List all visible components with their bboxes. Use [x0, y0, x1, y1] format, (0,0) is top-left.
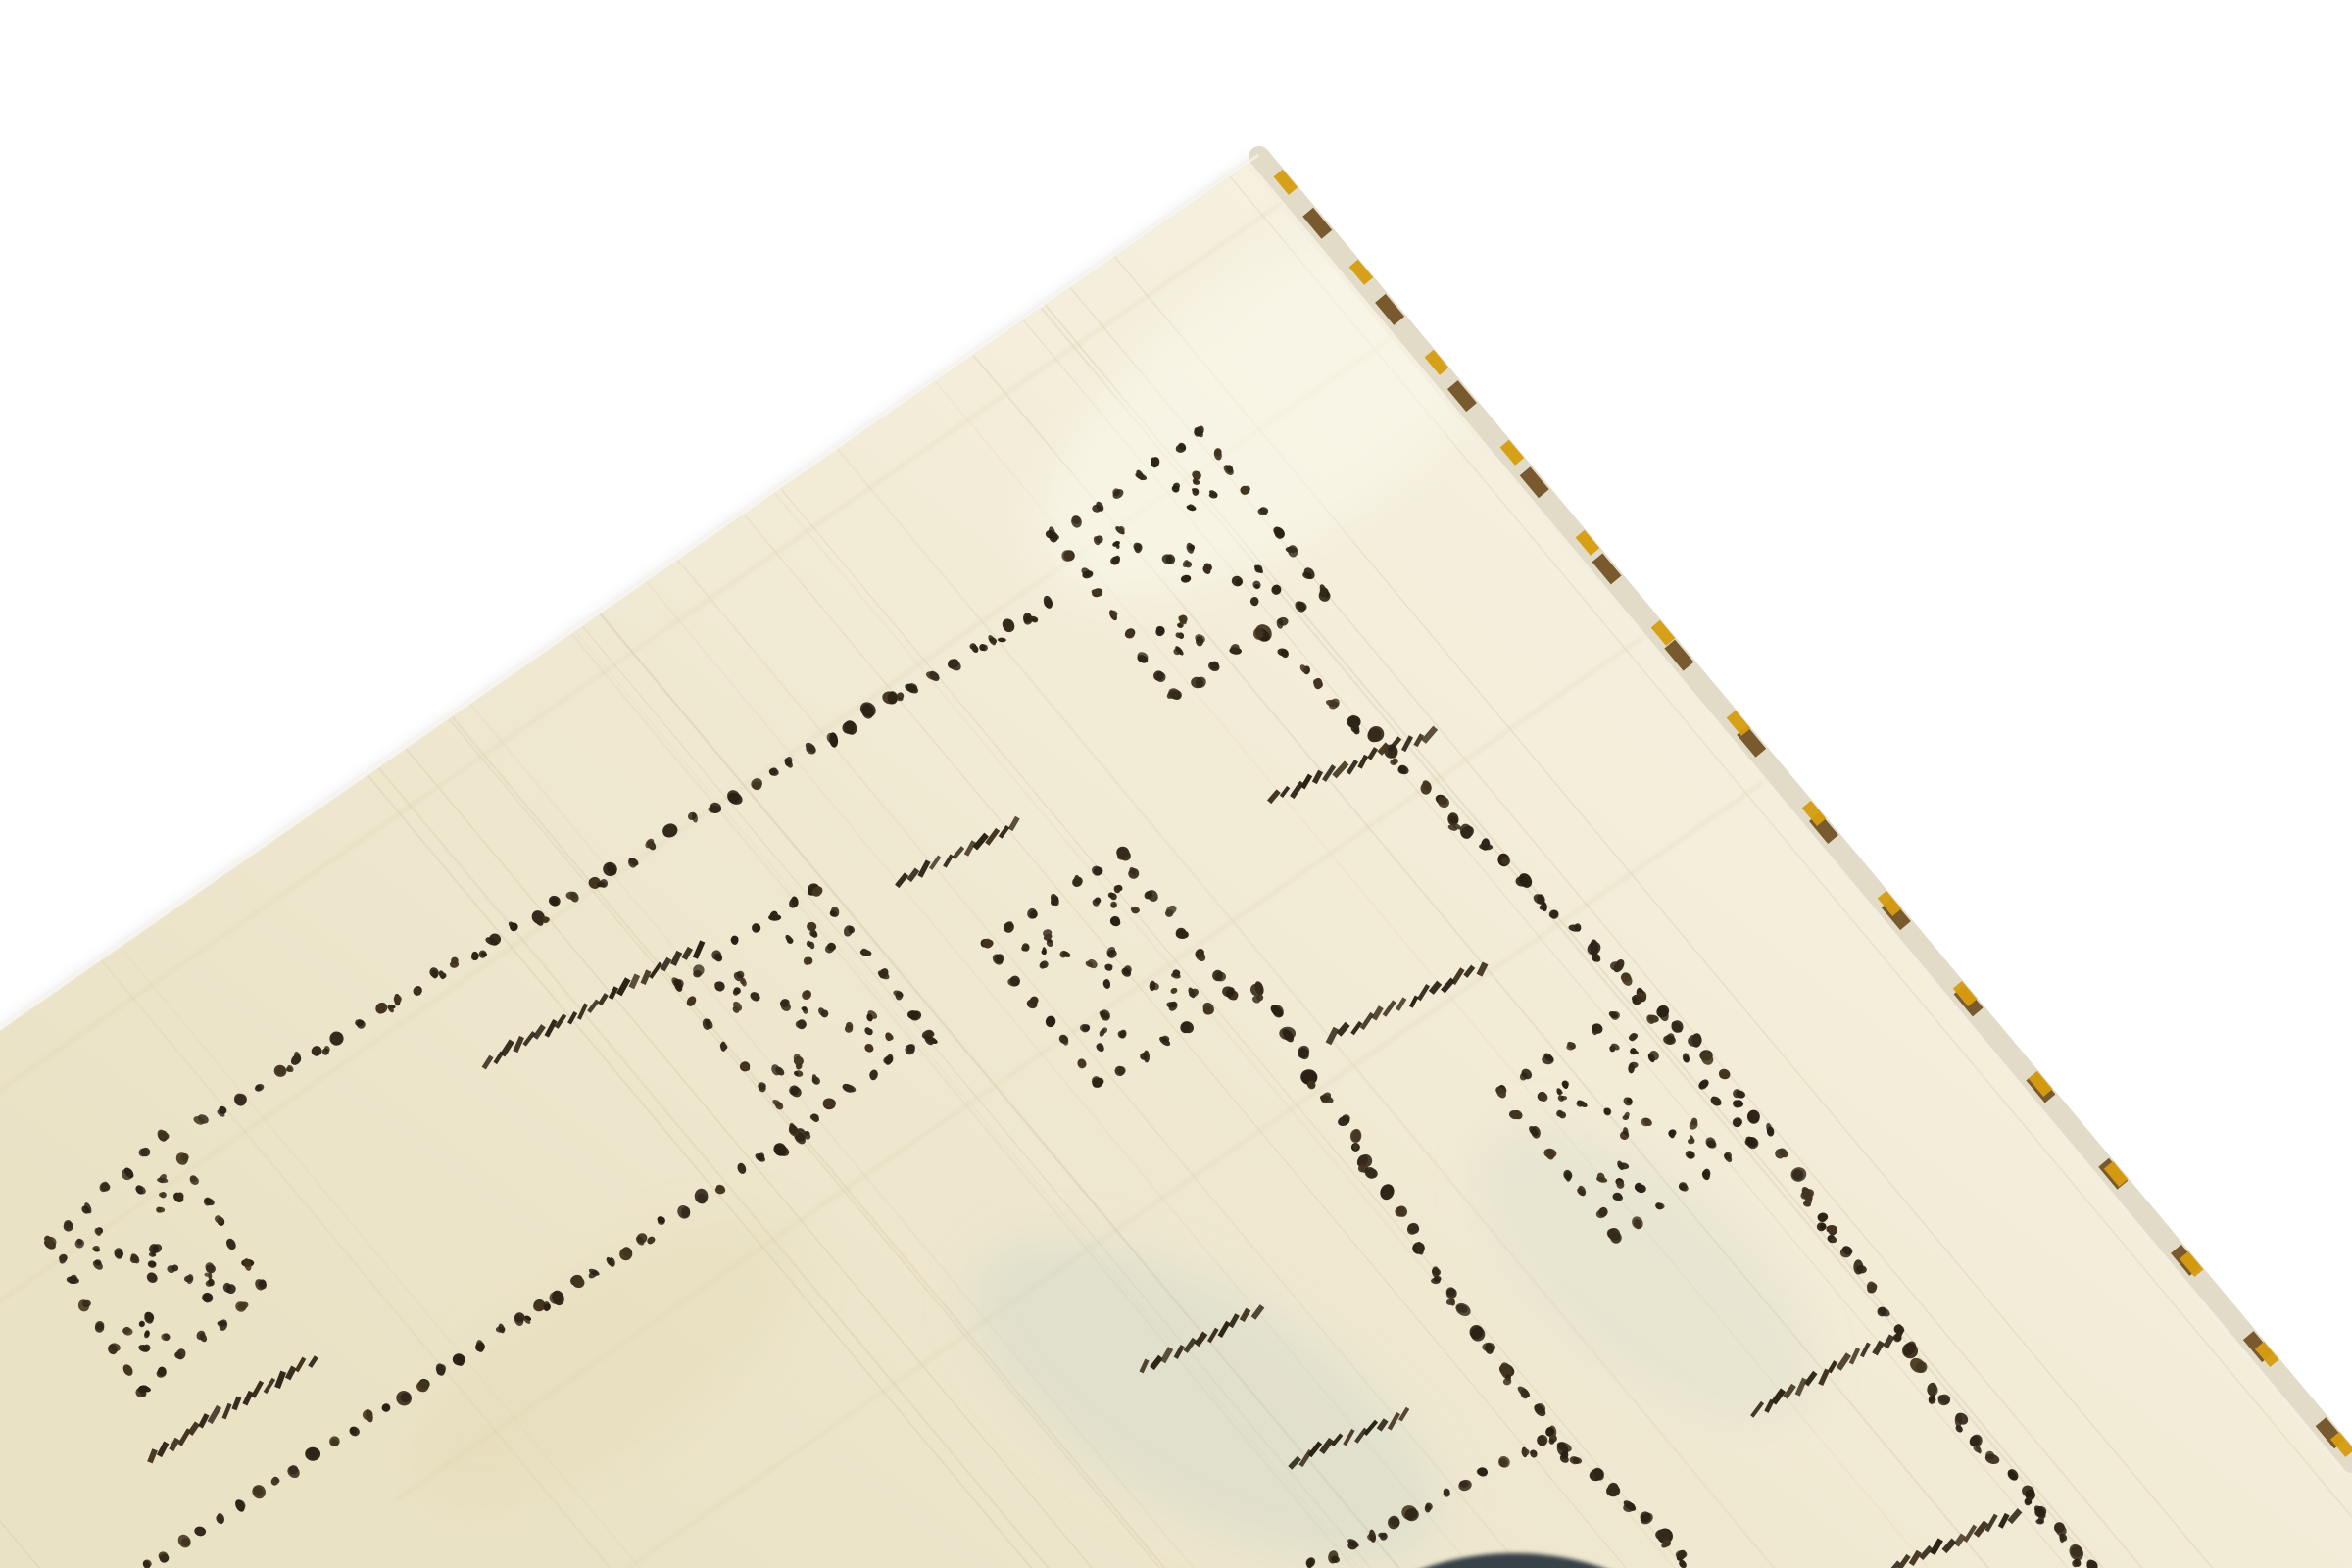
rug-photo	[0, 0, 2352, 1568]
rug-scene	[0, 0, 2352, 1568]
